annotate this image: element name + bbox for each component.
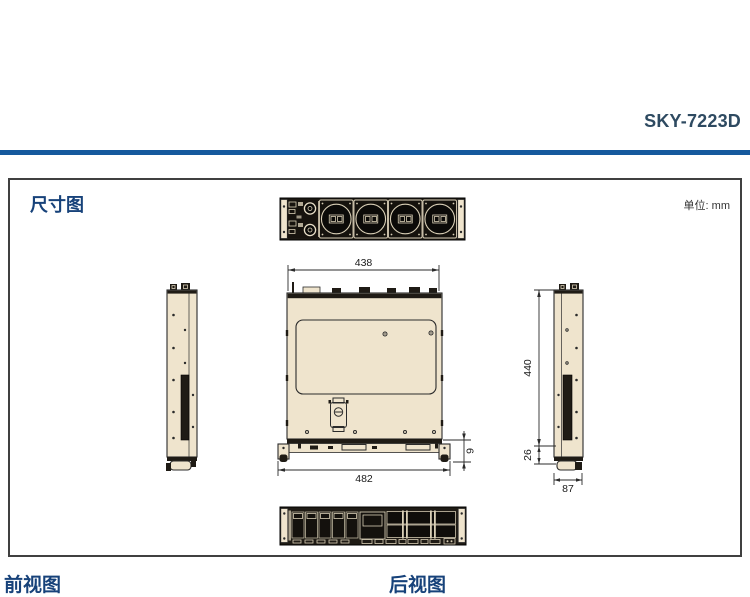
left-side-view-drawing: [166, 283, 197, 471]
datasheet-page: { "page": { "product_model": "SKY-7223D"…: [0, 0, 750, 591]
top-access-panel: [296, 320, 436, 394]
side-vent-slot: [563, 375, 572, 440]
side-handle: [170, 461, 191, 470]
rear-view-label: 后视图: [389, 570, 446, 597]
dimension-diagram-panel: 尺寸图 单位: mm: [8, 178, 742, 557]
dimension-26: 26: [522, 446, 556, 464]
dim-label-top-width: 438: [355, 257, 373, 269]
left-mounting-ear: [278, 444, 289, 462]
front-panel-drawing: [280, 507, 466, 545]
dim-label-depth: 440: [522, 359, 534, 377]
header-divider-rule: [0, 150, 750, 155]
top-view-drawing: [278, 282, 450, 462]
right-mounting-ear: [439, 444, 450, 462]
dim-label-overall-width: 482: [355, 473, 373, 485]
dim-label-height: 87: [562, 483, 574, 495]
rear-panel-drawing: [280, 198, 465, 240]
drive-bays: [289, 511, 359, 544]
dimension-438: 438: [288, 257, 439, 291]
front-view-label: 前视图: [4, 570, 61, 597]
side-vent-slot: [181, 375, 189, 440]
fan-icon: [423, 200, 457, 238]
dimension-87: 87: [554, 473, 582, 495]
right-side-view-drawing: [554, 283, 583, 470]
product-model-title: SKY-7223D: [644, 111, 741, 132]
fan-icon: [354, 200, 388, 238]
power-supply-modules: [288, 200, 319, 239]
power-connector-icon: [304, 224, 315, 235]
dimension-drawings: 438 482 9: [10, 180, 740, 553]
fan-icon: [389, 200, 423, 238]
dimension-482: 482: [278, 461, 450, 485]
dim-label-ear-offset: 9: [465, 448, 477, 454]
side-handle: [557, 461, 577, 470]
center-module: [360, 512, 385, 539]
dimension-440: 440: [522, 290, 556, 446]
dim-label-front-section: 26: [522, 449, 534, 461]
power-connector-icon: [304, 203, 315, 214]
fan-icon: [320, 200, 354, 238]
